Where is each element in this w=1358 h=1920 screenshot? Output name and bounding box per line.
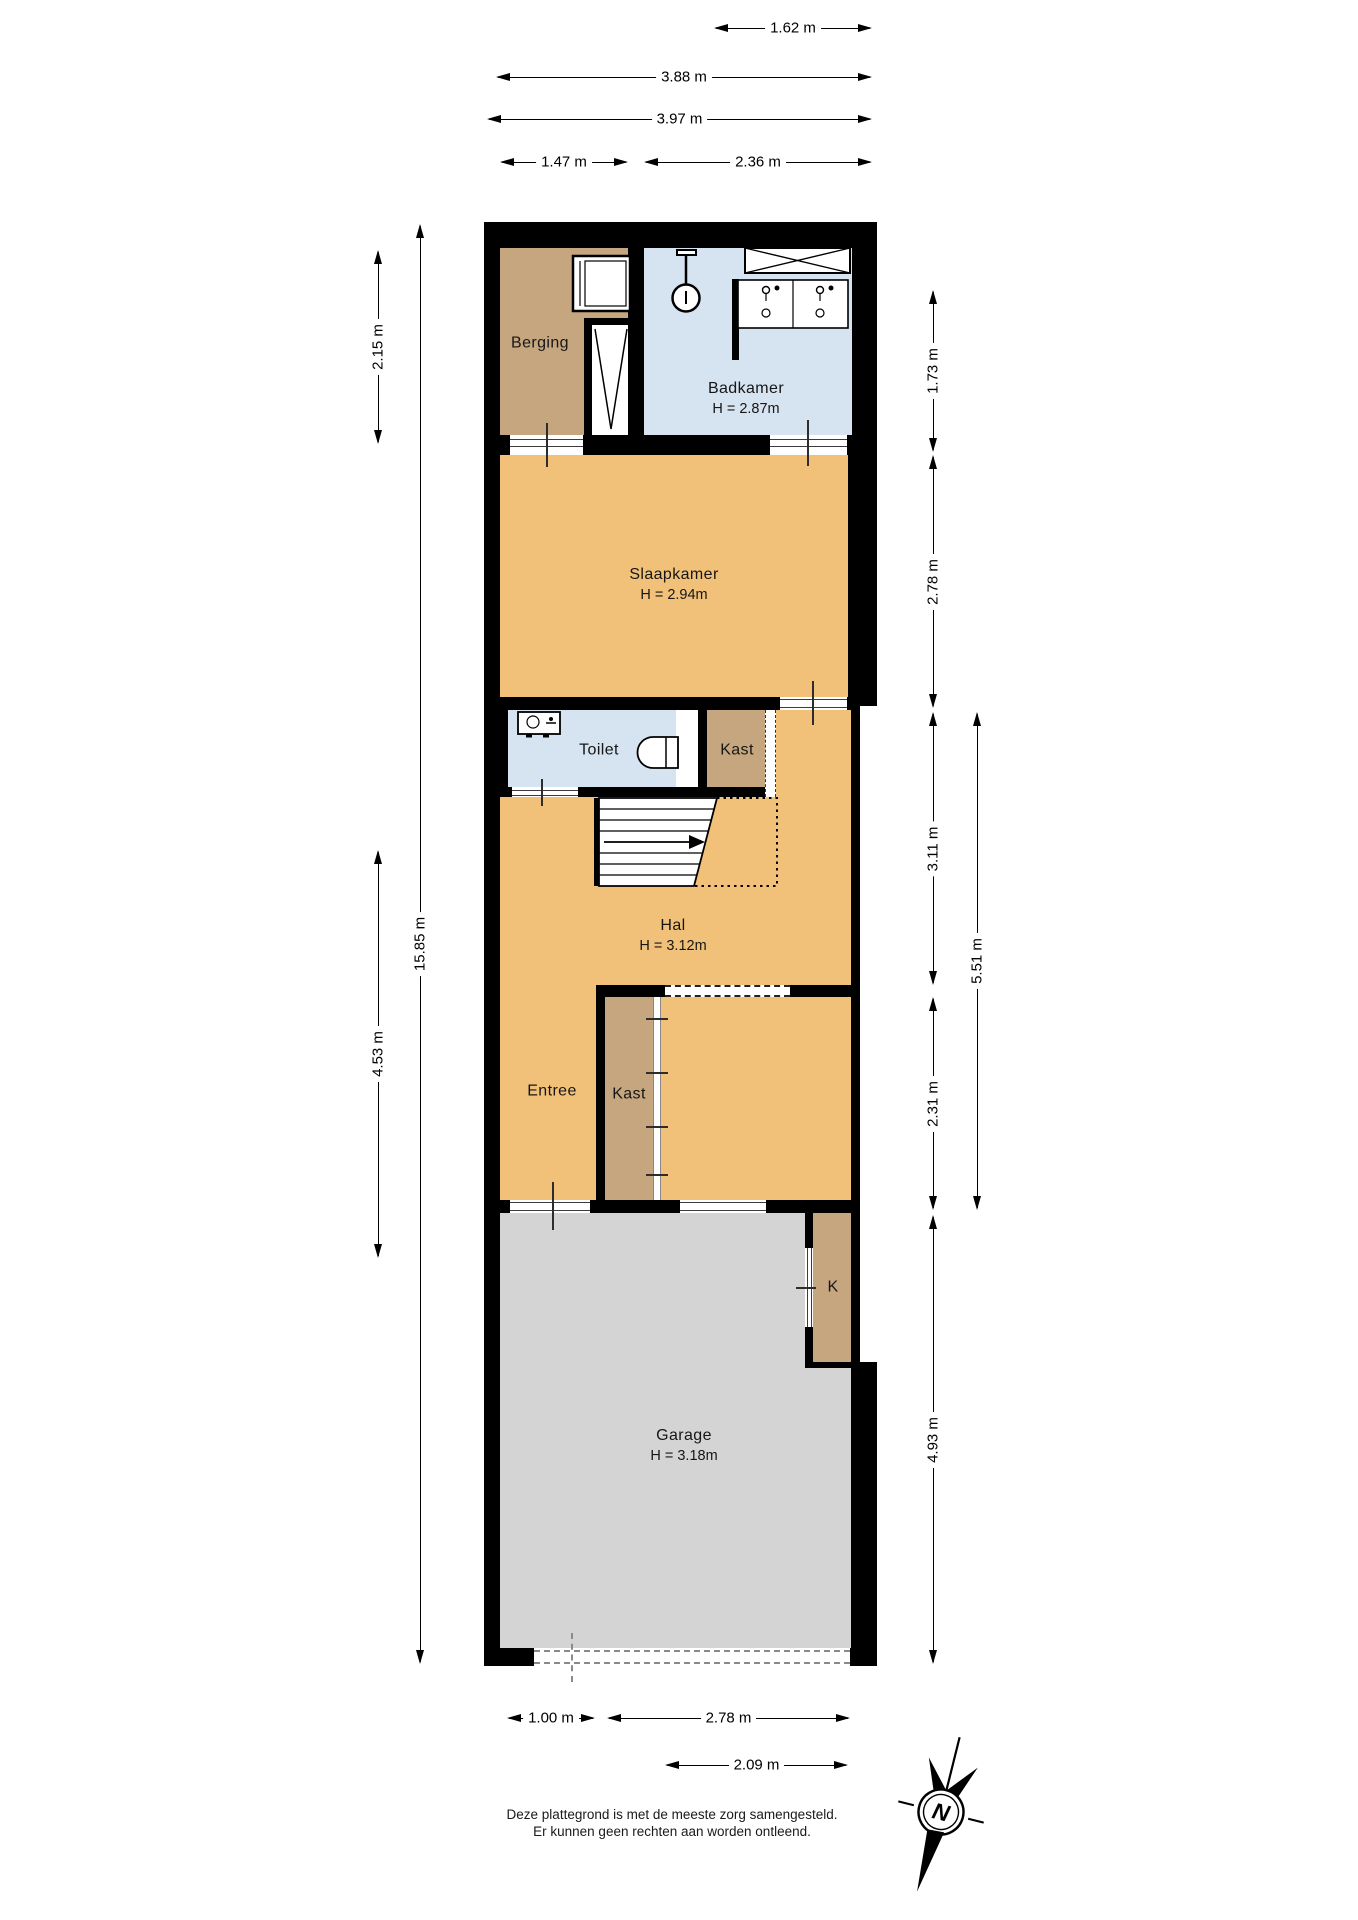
room-label-badkamer: BadkamerH = 2.87m <box>708 379 784 419</box>
door-tick <box>646 1018 668 1020</box>
room-label-berging: Berging <box>511 334 569 355</box>
shaft-wall-top <box>584 318 630 325</box>
window-hal-garage <box>680 1200 766 1213</box>
compass-n-label: N <box>930 1797 953 1826</box>
room-hal-entree <box>500 797 851 1200</box>
dimension-top-3: 3.97 m <box>487 112 872 126</box>
kast-open-boundary <box>765 710 776 797</box>
dimension-right-5: 4.93 m <box>926 1215 940 1664</box>
window-tick <box>812 681 814 725</box>
dimension-top-2: 3.88 m <box>496 70 872 84</box>
dimension-top-1: 1.62 m <box>714 21 872 35</box>
disclaimer: Deze plattegrond is met de meeste zorg s… <box>507 1806 838 1840</box>
badkamer-stub-wall <box>732 279 739 360</box>
door-tick <box>546 423 548 467</box>
toilet-duct-niche <box>676 710 698 787</box>
door-tick <box>646 1126 668 1128</box>
door-tick <box>646 1174 668 1176</box>
door-tick <box>541 779 543 806</box>
dimension-left-1: 2.15 m <box>371 250 385 444</box>
dimension-bottom-3: 2.09 m <box>665 1758 848 1772</box>
wall-step-cutout <box>860 706 877 1362</box>
dimension-right-2: 2.78 m <box>926 455 940 708</box>
dimension-right-1: 1.73 m <box>926 290 940 452</box>
dimension-right-6: 5.51 m <box>970 712 984 1210</box>
dimension-right-4: 2.31 m <box>926 997 940 1210</box>
dimension-top-4: 1.47 m <box>500 155 628 169</box>
door-entree-garage <box>510 1200 590 1213</box>
room-label-entree: Entree <box>527 1082 577 1103</box>
door-tick <box>807 420 809 466</box>
dimension-bottom-2: 2.78 m <box>607 1711 850 1725</box>
dimension-bottom-1: 1.00 m <box>507 1711 595 1725</box>
door-tick <box>552 1182 554 1230</box>
disclaimer-line-1: Deze plattegrond is met de meeste zorg s… <box>507 1806 838 1823</box>
dimension-left-3: 15.85 m <box>413 224 427 1664</box>
room-label-k: K <box>827 1278 838 1299</box>
room-label-kast-boven: Kast <box>720 741 754 762</box>
dimension-top-5: 2.36 m <box>644 155 872 169</box>
door-toilet <box>512 787 578 797</box>
window-tick <box>796 1287 816 1289</box>
room-label-toilet: Toilet <box>579 741 619 762</box>
room-label-hal: HalH = 3.12m <box>639 916 706 956</box>
room-label-garage: GarageH = 3.18m <box>650 1426 717 1466</box>
compass-north-icon: N <box>878 1727 1002 1904</box>
entree-kast-wall <box>596 985 605 1200</box>
garage-door <box>534 1648 850 1666</box>
floorplan-page: { "colors": { "wall": "#000000", "orange… <box>0 0 1358 1920</box>
garage-door-tick <box>571 1633 573 1682</box>
dimension-left-2: 4.53 m <box>371 850 385 1258</box>
kast-top-wall <box>596 985 665 997</box>
duct-shaft <box>592 325 628 435</box>
room-label-kast-onder: Kast <box>612 1085 646 1106</box>
door-tick <box>646 1072 668 1074</box>
kast-sliding-door <box>653 997 661 1200</box>
room-label-slaapkamer: SlaapkamerH = 2.94m <box>629 565 718 605</box>
floor-opening-dashed <box>665 985 790 997</box>
shaft-wall-left <box>584 318 592 435</box>
dimension-right-3: 3.11 m <box>926 712 940 985</box>
disclaimer-line-2: Er kunnen geen rechten aan worden ontlee… <box>507 1823 838 1840</box>
hal-wall-segment <box>790 985 851 997</box>
